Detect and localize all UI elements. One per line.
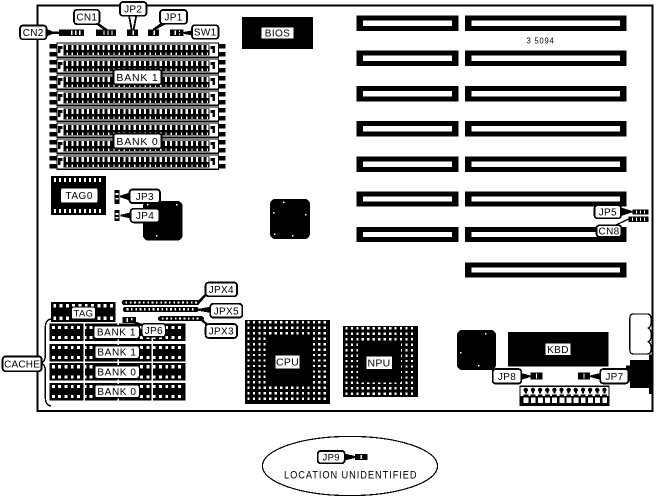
svg-text:BANK 0: BANK 0	[97, 387, 136, 398]
svg-text:BIOS: BIOS	[265, 29, 291, 40]
svg-text:3 5094: 3 5094	[527, 37, 555, 46]
svg-text:JP3: JP3	[136, 192, 154, 203]
svg-text:JP1: JP1	[164, 13, 182, 24]
svg-text:JPX5: JPX5	[214, 306, 239, 317]
svg-text:LOCATION UNIDENTIFIED: LOCATION UNIDENTIFIED	[284, 469, 418, 481]
svg-text:SW1: SW1	[194, 28, 217, 39]
svg-text:TAG0: TAG0	[66, 191, 93, 202]
svg-text:JP9: JP9	[323, 453, 340, 464]
svg-text:JP5: JP5	[599, 207, 617, 218]
svg-text:JP4: JP4	[136, 211, 154, 222]
svg-text:JPX4: JPX4	[209, 285, 234, 296]
svg-text:JP2: JP2	[124, 5, 142, 16]
svg-text:BANK 1: BANK 1	[116, 72, 158, 84]
svg-text:BANK 1: BANK 1	[97, 328, 136, 339]
svg-text:CN2: CN2	[23, 28, 44, 39]
svg-text:BANK 0: BANK 0	[97, 368, 136, 379]
svg-text:JPX3: JPX3	[209, 327, 234, 338]
svg-text:CACHE: CACHE	[4, 359, 40, 370]
svg-text:KBD: KBD	[547, 345, 569, 356]
svg-text:JP7: JP7	[605, 372, 623, 383]
svg-text:TAG: TAG	[74, 309, 94, 320]
svg-text:JP8: JP8	[498, 372, 516, 383]
svg-text:JP6: JP6	[145, 326, 163, 337]
svg-text:CPU: CPU	[276, 357, 299, 369]
svg-text:BANK 0: BANK 0	[116, 136, 158, 148]
svg-text:CN8: CN8	[599, 227, 620, 238]
svg-text:CN1: CN1	[76, 13, 97, 24]
svg-text:BANK 1: BANK 1	[97, 348, 136, 359]
svg-text:NPU: NPU	[367, 358, 390, 370]
